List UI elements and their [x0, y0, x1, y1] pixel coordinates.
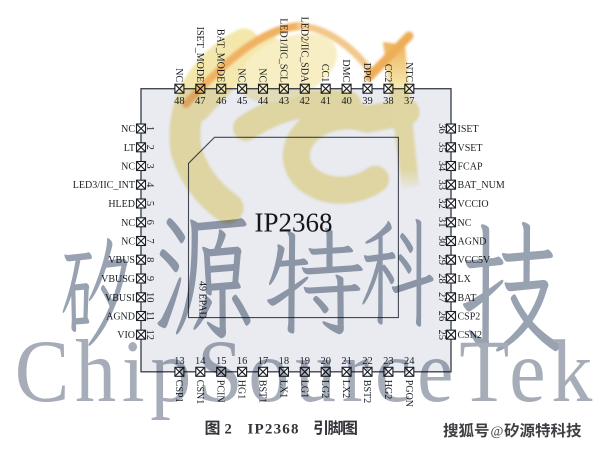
svg-text:ISET: ISET	[458, 124, 479, 135]
svg-text:NC: NC	[458, 218, 472, 229]
svg-text:9: 9	[144, 276, 155, 281]
svg-text:LED3/IIC_INT: LED3/IIC_INT	[73, 180, 135, 191]
svg-text:IP2368: IP2368	[254, 208, 332, 238]
svg-text:1: 1	[144, 126, 155, 131]
svg-text:32: 32	[436, 198, 447, 209]
svg-text:31: 31	[436, 217, 447, 228]
svg-text:FCAP: FCAP	[458, 162, 483, 173]
svg-text:26: 26	[436, 311, 447, 322]
svg-text:LT: LT	[124, 143, 135, 154]
svg-text:6: 6	[144, 220, 155, 225]
svg-text:HLED: HLED	[108, 199, 135, 210]
svg-text:34: 34	[436, 161, 447, 172]
svg-text:28: 28	[436, 273, 447, 284]
svg-text:NC: NC	[121, 124, 135, 135]
svg-text:8: 8	[144, 257, 155, 262]
svg-text:27: 27	[436, 292, 447, 303]
svg-text:30: 30	[436, 236, 447, 247]
svg-text:5: 5	[144, 201, 155, 206]
svg-text:2: 2	[144, 145, 155, 150]
svg-text:11: 11	[144, 311, 155, 321]
svg-text:35: 35	[436, 142, 447, 153]
svg-text:LX: LX	[458, 274, 472, 285]
svg-text:VSET: VSET	[458, 143, 483, 154]
svg-text:4: 4	[144, 182, 155, 188]
svg-text:10: 10	[144, 292, 155, 303]
svg-text:NC: NC	[121, 218, 135, 229]
svg-text:7: 7	[144, 238, 155, 243]
svg-text:29: 29	[436, 255, 447, 266]
svg-text:@: @	[491, 425, 504, 440]
svg-text:DMC: DMC	[340, 59, 351, 82]
svg-text:45: 45	[237, 96, 248, 107]
svg-text:CSP2: CSP2	[458, 312, 481, 323]
svg-text:3: 3	[144, 163, 155, 168]
svg-text:IP2368: IP2368	[248, 422, 300, 438]
svg-text:33: 33	[436, 180, 447, 191]
svg-text:2: 2	[225, 422, 232, 438]
svg-text:NC: NC	[121, 162, 135, 173]
svg-text:NC: NC	[173, 68, 184, 82]
svg-text:ChipSourceTek: ChipSourceTek	[15, 323, 598, 421]
svg-text:BAT_NUM: BAT_NUM	[458, 180, 505, 191]
svg-text:VCCIO: VCCIO	[458, 199, 489, 210]
svg-text:NC: NC	[121, 237, 135, 248]
svg-text:AGND: AGND	[458, 237, 487, 248]
svg-text:36: 36	[436, 123, 447, 134]
